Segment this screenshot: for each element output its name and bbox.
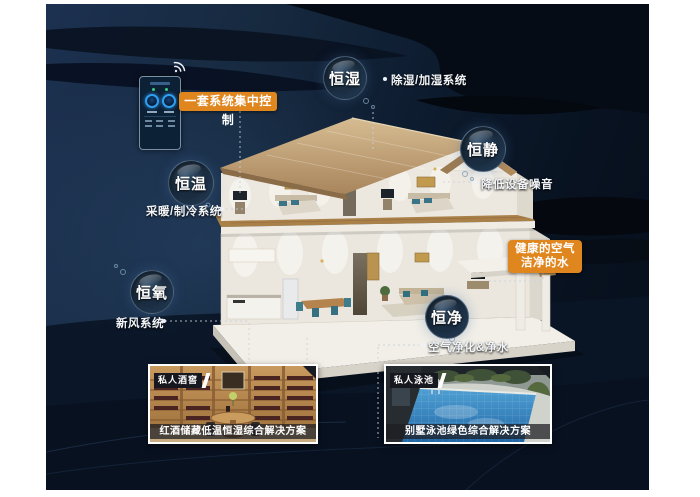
badge-text: 私人酒窖 xyxy=(158,375,198,385)
bubble-label: 恒静 xyxy=(467,139,499,160)
corner-fold xyxy=(537,366,550,379)
poster-page: 一套系统集中控制 恒湿 除湿/加湿系统 恒静 降低设备噪音 恒温 采暖/制冷系统… xyxy=(0,0,700,497)
bubble-desc-oxygen: 新风系统 xyxy=(116,315,164,331)
phone-value-bars xyxy=(143,111,177,113)
bubble-constant-humidity: 恒湿 xyxy=(323,56,367,100)
wifi-icon xyxy=(166,58,186,76)
control-phone xyxy=(139,76,181,150)
bubble-constant-purity: 恒净 xyxy=(425,295,469,339)
bubble-desc-purity: 空气净化&净水 xyxy=(428,339,509,355)
bubble-desc-quiet: 降低设备噪音 xyxy=(481,176,553,192)
humidity-knob xyxy=(162,94,176,108)
bubble-label: 恒净 xyxy=(431,307,463,328)
bubble-constant-quiet: 恒静 xyxy=(460,126,506,172)
phone-status-dots xyxy=(147,88,173,91)
badge-text: 私人泳池 xyxy=(394,375,434,385)
wine-cellar-caption: 红酒储藏低温恒湿综合解决方案 xyxy=(150,424,316,439)
bubble-desc-humidity: 除湿/加湿系统 xyxy=(391,72,467,88)
bubble-constant-temperature: 恒温 xyxy=(168,160,214,206)
pool-card: 私人泳池 别墅泳池绿色综合解决方案 xyxy=(384,364,552,444)
central-control-tag: 一套系统集中控制 xyxy=(179,92,277,111)
phone-menu-row xyxy=(143,125,177,127)
corner-fold xyxy=(303,366,316,379)
connector-dot xyxy=(383,77,387,81)
temperature-knob xyxy=(145,94,159,108)
pool-caption: 别墅泳池绿色综合解决方案 xyxy=(386,424,550,439)
phone-screen-title xyxy=(150,82,170,85)
connector-dot xyxy=(421,343,425,347)
phone-divider xyxy=(144,116,176,117)
phone-control-knobs xyxy=(143,94,177,108)
connector-dot xyxy=(473,181,477,185)
bubble-label: 恒温 xyxy=(175,173,207,194)
bubble-label: 恒湿 xyxy=(329,68,361,89)
main-panel: 一套系统集中控制 恒湿 除湿/加湿系统 恒静 降低设备噪音 恒温 采暖/制冷系统… xyxy=(46,4,649,490)
highlight-line-1: 健康的空气 xyxy=(508,242,582,256)
highlight-line-2: 洁净的水 xyxy=(508,256,582,270)
connector-dot xyxy=(220,207,224,211)
wine-cellar-card: 私人酒窖 红酒储藏低温恒湿综合解决方案 xyxy=(148,364,318,444)
wine-cellar-badge: 私人酒窖 xyxy=(154,373,202,388)
bubble-label: 恒氧 xyxy=(136,282,168,303)
bubble-desc-temperature: 采暖/制冷系统 xyxy=(146,203,222,219)
phone-menu-row xyxy=(143,120,177,122)
connector-dot xyxy=(162,319,166,323)
highlight-box: 健康的空气 洁净的水 xyxy=(508,240,582,273)
pool-badge: 私人泳池 xyxy=(390,373,438,388)
bubble-constant-oxygen: 恒氧 xyxy=(130,270,174,314)
